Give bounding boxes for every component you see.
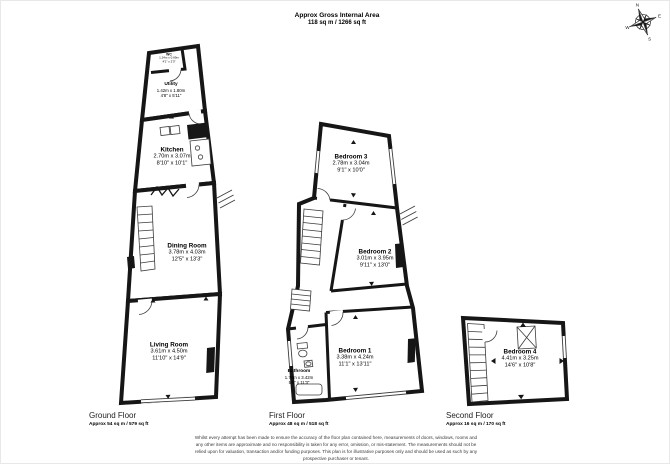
sink-bowl (170, 126, 180, 135)
bedroom2-french-door-window (400, 206, 418, 225)
floorplan-page: Approx Gross Internal Area 118 sq m / 12… (0, 0, 670, 464)
second-floor-label: Second Floor Approx 16 sq m / 170 sq ft (446, 411, 505, 427)
first-floor-plan (288, 124, 423, 402)
ground-floor-plan (121, 46, 235, 403)
bedroom1-door-opening (330, 312, 343, 314)
bedroom4-window-opening (564, 336, 565, 358)
bedroom2-chimney-breast (395, 243, 404, 268)
compass-label-e: E (658, 14, 661, 19)
basin-outline (304, 360, 313, 367)
bathroom-door-opening (296, 327, 308, 328)
dining-french-door-window (217, 190, 235, 208)
dining-living-door-opening (138, 301, 152, 302)
room-utility-outline (142, 46, 205, 120)
toilet-bowl (299, 350, 307, 357)
compass-label-w: W (625, 25, 630, 30)
floorplan-canvas: N E S W (1, 1, 670, 464)
kitchen-dining-door-opening (186, 185, 199, 186)
compass-rose-icon: N E S W (618, 1, 669, 48)
washbasin-icon (304, 360, 313, 367)
skylight-icon (517, 326, 536, 349)
living-chimney-breast (206, 347, 215, 373)
compass-label-s: S (648, 36, 651, 41)
compass-label-n: N (636, 2, 639, 7)
ground-floor-label: Ground Floor Approx 54 sq m / 579 sq ft (89, 411, 148, 427)
kitchen-unit-icon (187, 123, 209, 140)
dining-chimney-breast (127, 256, 135, 269)
room-living-outline (121, 294, 220, 403)
kitchen-hob-icon (190, 139, 211, 166)
first-floor-stairs-up (301, 209, 324, 265)
second-floor-plan (463, 318, 567, 404)
first-floor-label: First Floor Approx 48 sq m / 518 sq ft (269, 411, 328, 427)
utility-kitchen-door-opening (189, 112, 201, 114)
disclaimer-text: Whilst every attempt has been made to en… (96, 435, 576, 463)
hob-counter (190, 139, 211, 166)
bedroom2-door-opening (343, 207, 345, 220)
bedroom4-door-opening (484, 329, 485, 342)
bathtub-icon (296, 384, 322, 395)
wc-door-opening (169, 69, 181, 70)
bedroom1-chimney-breast (408, 338, 416, 363)
sink-bowl (160, 127, 170, 136)
first-floor-stairs-down (291, 289, 312, 311)
bedroom3-door-opening (317, 198, 330, 200)
toilet-cistern (297, 343, 308, 350)
